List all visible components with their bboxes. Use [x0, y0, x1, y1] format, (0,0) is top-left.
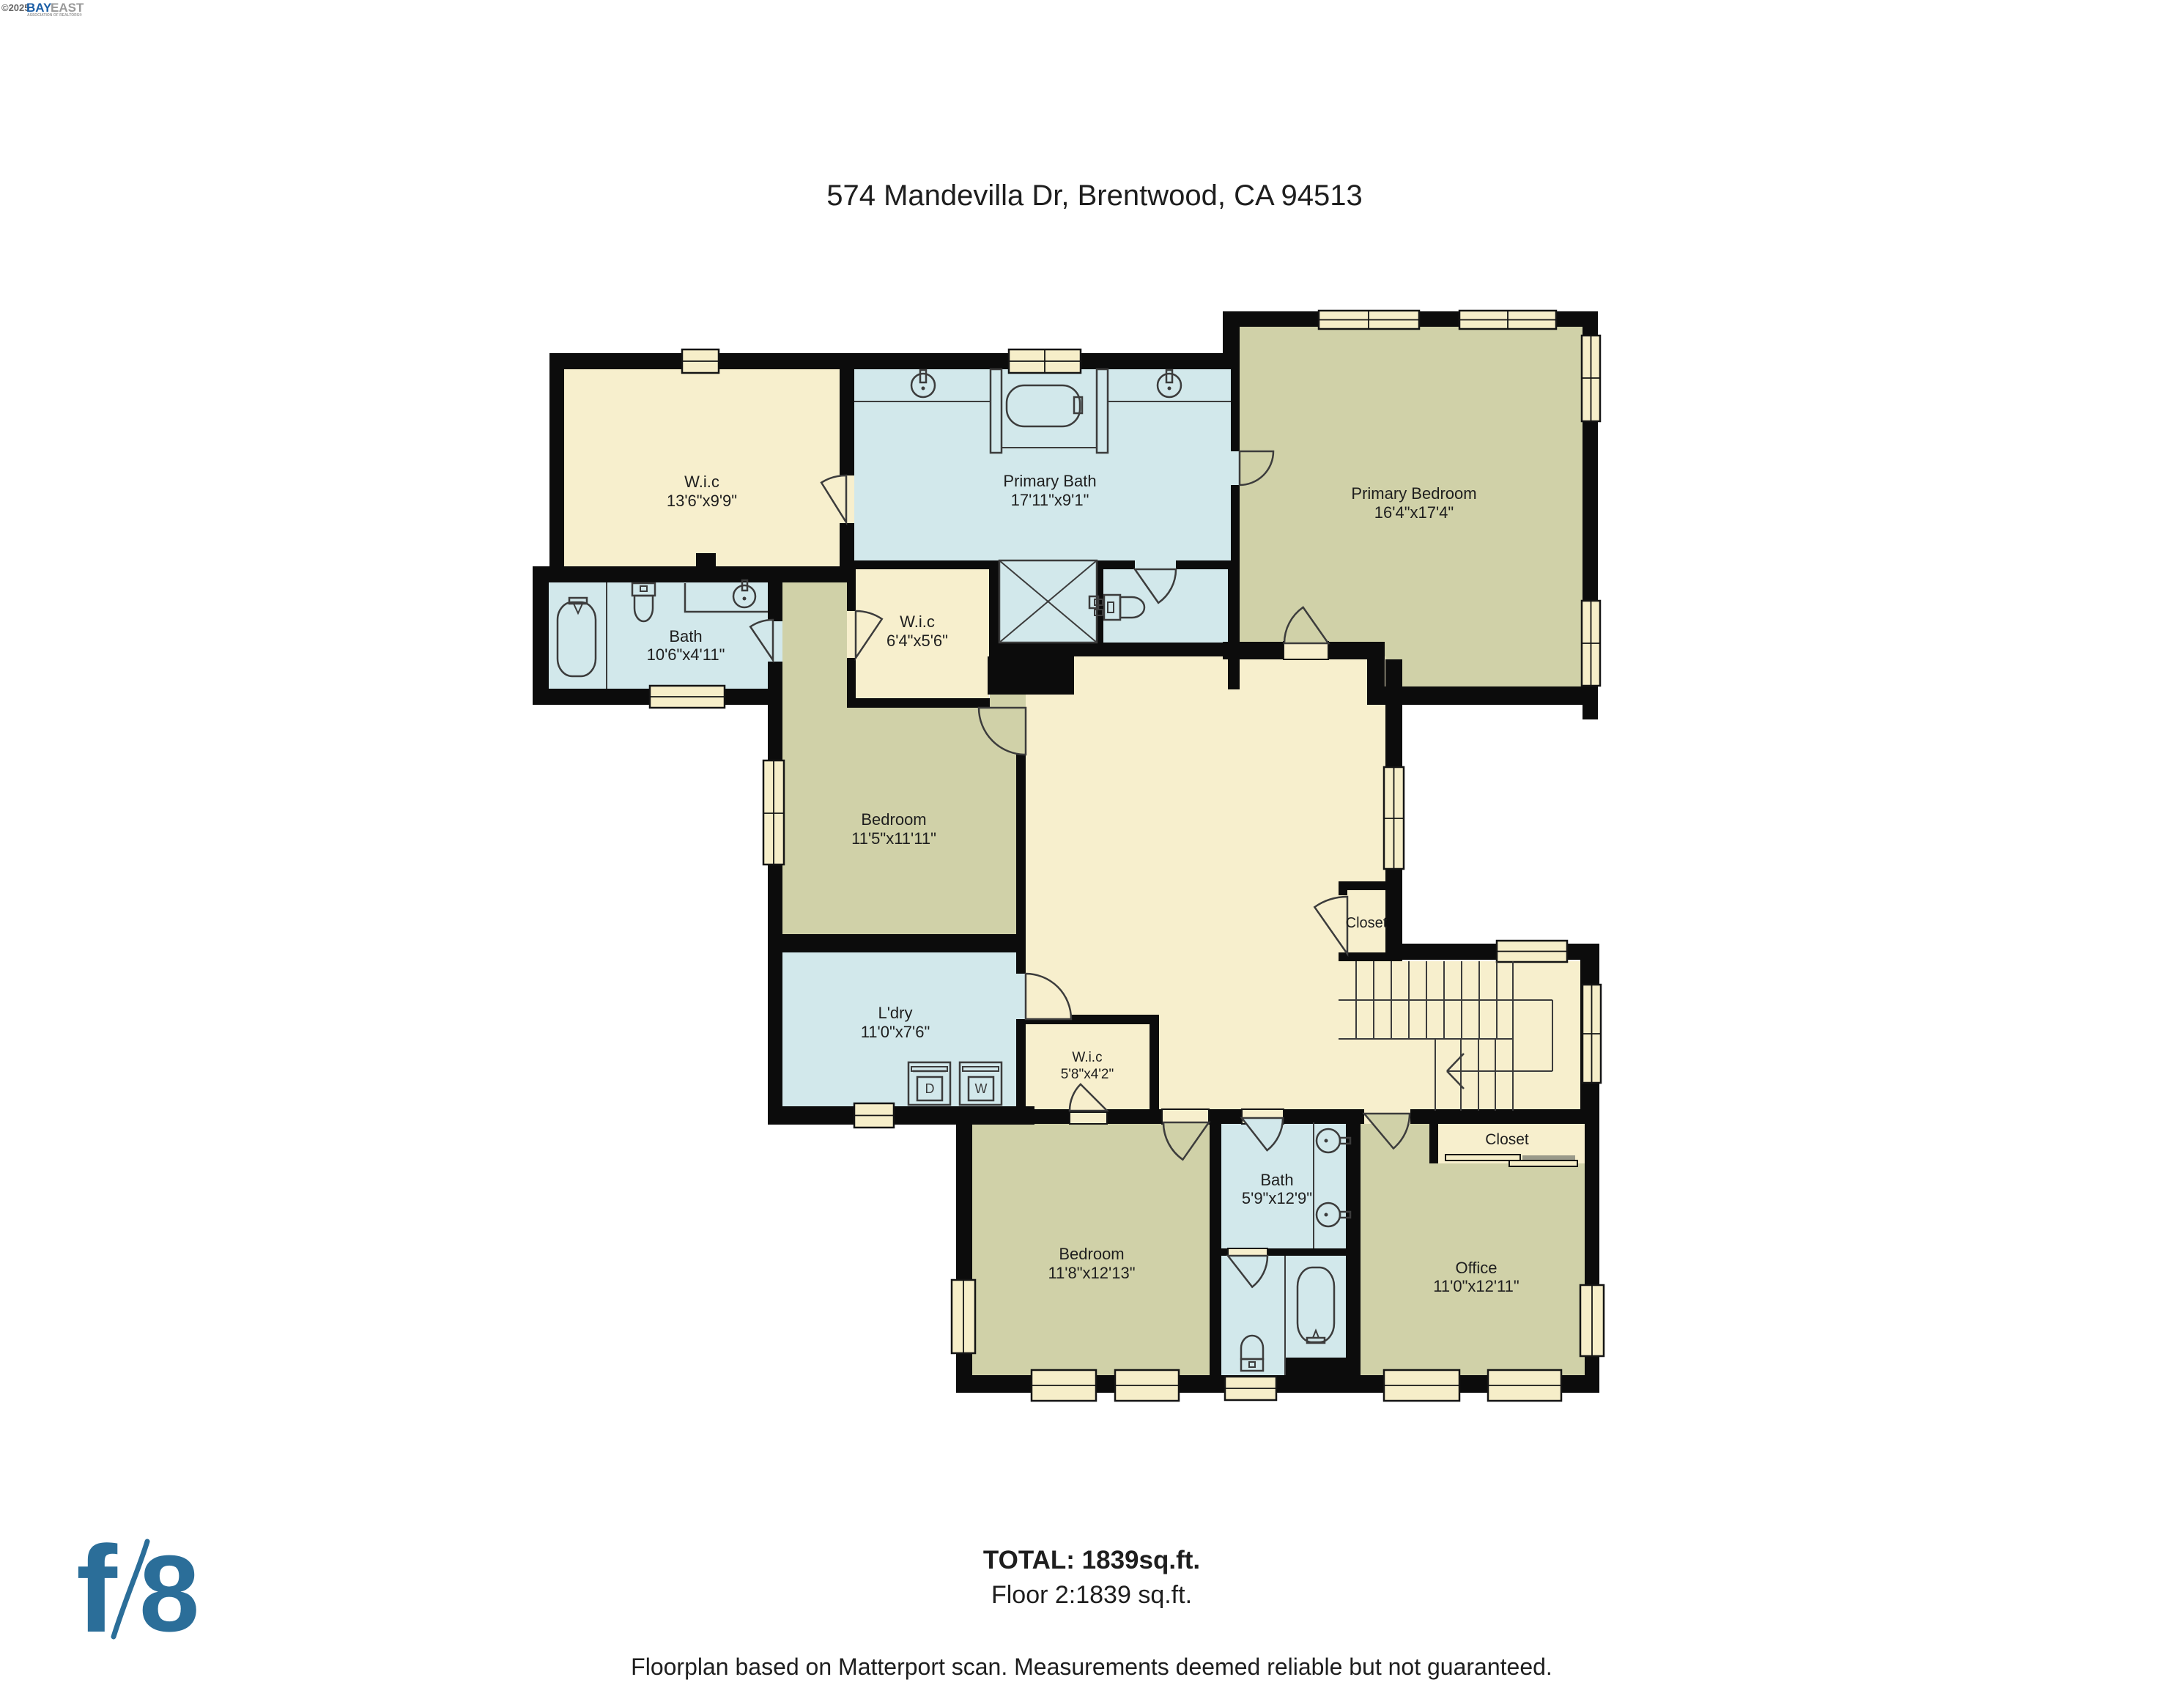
svg-text:11'0"x7'6": 11'0"x7'6" [861, 1023, 930, 1041]
svg-text:Office: Office [1455, 1259, 1497, 1277]
svg-text:©2025: ©2025 [1, 2, 30, 13]
svg-text:W.i.c: W.i.c [900, 612, 935, 631]
svg-text:Primary Bedroom: Primary Bedroom [1351, 484, 1476, 503]
svg-text:11'8"x12'13": 11'8"x12'13" [1048, 1264, 1135, 1282]
svg-text:17'11"x9'1": 17'11"x9'1" [1011, 491, 1089, 509]
svg-text:Floorplan based on Matterport: Floorplan based on Matterport scan. Meas… [631, 1654, 1552, 1680]
svg-text:6'4"x5'6": 6'4"x5'6" [886, 632, 948, 650]
svg-text:8: 8 [139, 1533, 199, 1654]
svg-text:Primary Bath: Primary Bath [1003, 472, 1096, 490]
svg-text:Floor 2:1839 sq.ft.: Floor 2:1839 sq.ft. [991, 1581, 1192, 1609]
svg-text:D: D [925, 1081, 935, 1096]
svg-text:Closet: Closet [1346, 915, 1388, 931]
svg-text:11'0"x12'11": 11'0"x12'11" [1433, 1277, 1519, 1295]
svg-text:Bath: Bath [669, 627, 702, 645]
svg-text:W: W [975, 1081, 988, 1096]
svg-text:ASSOCIATION OF REALTORS®: ASSOCIATION OF REALTORS® [27, 12, 82, 18]
svg-text:Bath: Bath [1260, 1171, 1293, 1189]
svg-text:11'5"x11'11": 11'5"x11'11" [851, 829, 936, 848]
svg-text:Bedroom: Bedroom [861, 810, 926, 829]
svg-text:W.i.c: W.i.c [684, 473, 719, 491]
svg-text:13'6"x9'9": 13'6"x9'9" [667, 492, 737, 510]
svg-text:TOTAL: 1839sq.ft.: TOTAL: 1839sq.ft. [983, 1546, 1200, 1574]
svg-text:574 Mandevilla Dr, Brentwood,: 574 Mandevilla Dr, Brentwood, CA 94513 [826, 179, 1363, 212]
svg-text:L'dry: L'dry [878, 1004, 913, 1022]
svg-text:5'9"x12'9": 5'9"x12'9" [1242, 1189, 1312, 1207]
svg-text:5'8"x4'2": 5'8"x4'2" [1061, 1067, 1114, 1082]
svg-text:Closet: Closet [1485, 1131, 1529, 1148]
svg-text:10'6"x4'11": 10'6"x4'11" [647, 645, 725, 664]
svg-text:Bedroom: Bedroom [1059, 1245, 1124, 1263]
svg-text:W.i.c: W.i.c [1072, 1050, 1102, 1065]
svg-text:16'4"x17'4": 16'4"x17'4" [1374, 503, 1454, 522]
